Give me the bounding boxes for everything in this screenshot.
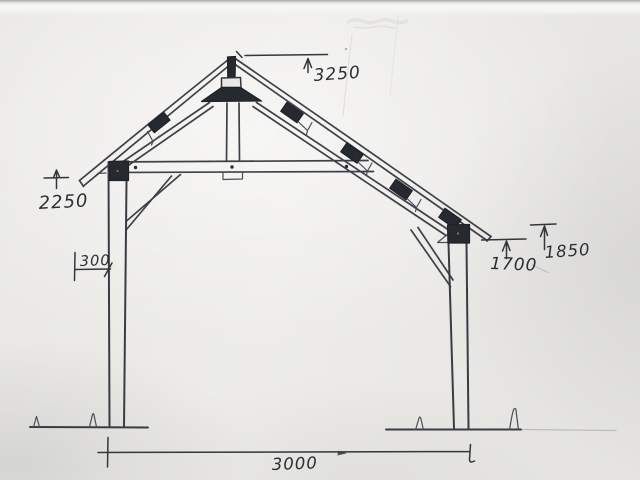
- truss-drawing: 3250 2250 300 1700 1850 3000: [0, 0, 640, 480]
- king-post-left-edge: [227, 103, 228, 161]
- left-post-right-edge: [124, 181, 127, 427]
- dimension-span: 3000: [98, 438, 475, 474]
- dimension-right-eave-height: 1850: [531, 224, 592, 262]
- tie-beam-faint-tick: [212, 161, 218, 162]
- dimension-label: 1850: [544, 240, 591, 262]
- right-strut-top-edge: [257, 103, 449, 230]
- left-rafter-tail-cut: [80, 181, 84, 187]
- purlin-cleat: [358, 162, 372, 175]
- left-post-connector: [110, 161, 129, 181]
- apex-assembly: [202, 57, 262, 102]
- left-knee-brace-edge: [127, 176, 172, 230]
- purlin-blocks: [148, 102, 462, 228]
- posts: [98, 162, 469, 428]
- dimension-label: 3250: [313, 63, 362, 86]
- right-knee-brace-edge: [411, 230, 451, 287]
- dimension-right-underside-height: 1700: [482, 239, 538, 276]
- dimension-label: 1700: [490, 254, 538, 276]
- photographed-sketch: 3250 2250 300 1700 1850 3000: [0, 0, 640, 480]
- right-post-left-edge: [449, 243, 455, 428]
- dimension-left-eave-height: 2250: [38, 170, 89, 214]
- connector-plates: [110, 161, 470, 243]
- connector-highlight: [457, 233, 459, 235]
- dimension-label: 3000: [271, 453, 318, 474]
- right-post-right-edge: [467, 243, 469, 428]
- connector-highlight: [117, 170, 119, 172]
- ink-speck: [345, 48, 347, 50]
- king-post-bracket: [223, 173, 243, 180]
- apex-finial-post: [228, 57, 236, 81]
- purlin-block: [281, 102, 304, 122]
- peg-dot: [134, 166, 137, 169]
- faint-handwriting-smudge-2: [354, 26, 394, 28]
- ground-line-faint-extension: [521, 430, 616, 431]
- dimension-label: 2250: [38, 190, 89, 214]
- apex-collar: [222, 78, 242, 88]
- peg-dot: [230, 165, 233, 168]
- tie-beam: [110, 161, 374, 180]
- king-post-right-edge: [239, 103, 240, 161]
- dimension-apex-height: 3250: [237, 52, 362, 86]
- faint-handwriting-smudge: [348, 20, 407, 23]
- dimension-label: 300: [80, 253, 111, 270]
- grass-spike: [416, 417, 424, 430]
- ground-lines: [30, 408, 521, 430]
- right-eave-triangle-cleat: [438, 234, 449, 243]
- right-rafter-top-edge: [233, 57, 491, 237]
- grass-spike: [90, 414, 97, 427]
- dimension-leader: [44, 170, 69, 189]
- dimension-annotations: 3250 2250 300 1700 1850 3000: [38, 52, 591, 474]
- apex-cap-cone: [202, 88, 262, 102]
- purlin-block: [390, 179, 413, 199]
- dimension-post-offset: 300: [75, 253, 113, 281]
- purlin-cleat: [298, 122, 312, 135]
- grass-spike: [34, 417, 40, 428]
- king-post: [227, 103, 240, 161]
- faint-marks: [343, 16, 616, 431]
- leader-dash: [98, 173, 107, 174]
- left-post-left-edge: [109, 162, 110, 427]
- purlin-block: [148, 112, 170, 132]
- grass-spike: [510, 408, 519, 430]
